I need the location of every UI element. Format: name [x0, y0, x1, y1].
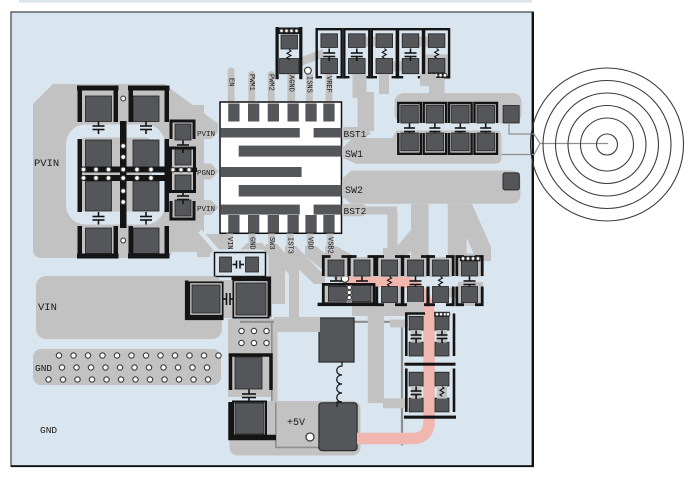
svg-text:GND: GND — [35, 363, 52, 374]
svg-text:PVIN: PVIN — [197, 131, 215, 139]
svg-text:VIN: VIN — [225, 237, 233, 250]
svg-text:PVIN: PVIN — [197, 206, 215, 214]
svg-text:EN: EN — [226, 78, 234, 86]
svg-text:AGND: AGND — [287, 75, 295, 92]
svg-text:PWM2: PWM2 — [266, 74, 274, 91]
svg-text:VIN: VIN — [38, 302, 57, 314]
svg-text:PVIN: PVIN — [34, 158, 59, 170]
svg-text:BST2: BST2 — [344, 206, 367, 217]
svg-text:ISNS: ISNS — [305, 76, 313, 93]
svg-text:+5V: +5V — [287, 418, 305, 429]
svg-text:VDD: VDD — [305, 237, 313, 250]
svg-text:SW1: SW1 — [345, 150, 363, 161]
svg-text:GND: GND — [247, 237, 255, 250]
svg-text:SW3: SW3 — [267, 237, 275, 250]
svg-text:IST3: IST3 — [285, 237, 293, 254]
svg-text:BST1: BST1 — [344, 129, 367, 140]
svg-text:GND: GND — [40, 425, 57, 436]
svg-text:PGND: PGND — [197, 170, 216, 178]
svg-text:SW2: SW2 — [345, 186, 363, 197]
svg-text:PWM1: PWM1 — [247, 74, 255, 91]
svg-text:VREF: VREF — [324, 76, 332, 93]
svg-text:VSB2: VSB2 — [325, 237, 333, 254]
